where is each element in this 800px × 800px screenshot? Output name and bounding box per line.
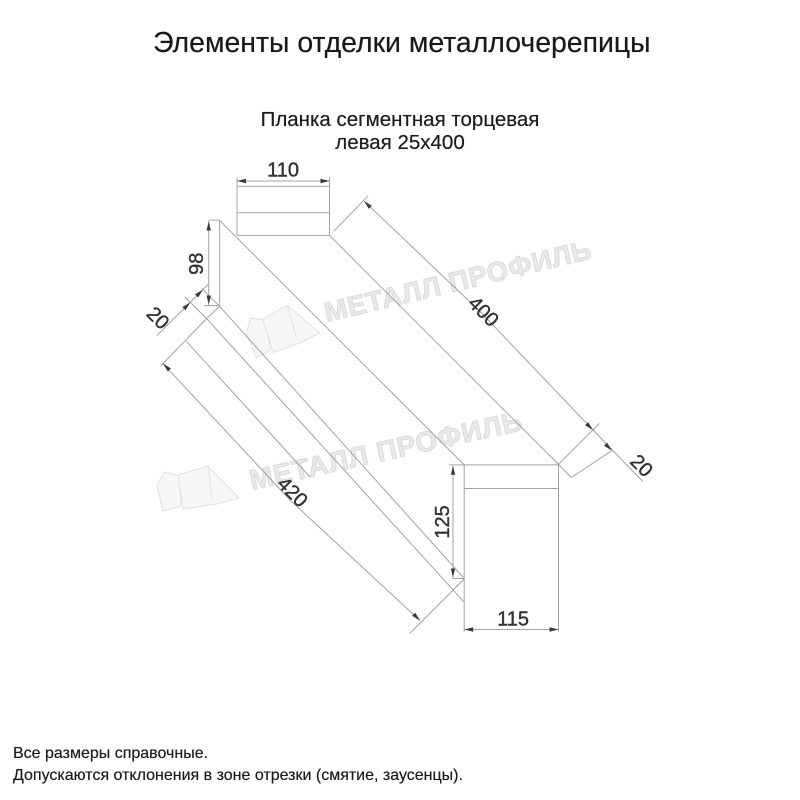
svg-text:115: 115 xyxy=(497,609,529,631)
svg-text:110: 110 xyxy=(267,159,299,181)
svg-text:20: 20 xyxy=(142,303,173,334)
svg-text:400: 400 xyxy=(464,292,503,331)
svg-text:125: 125 xyxy=(432,505,454,538)
svg-text:МЕТАЛЛ ПРОФИЛЬ: МЕТАЛЛ ПРОФИЛЬ xyxy=(321,234,595,328)
svg-text:98: 98 xyxy=(186,253,208,275)
svg-text:20: 20 xyxy=(625,450,656,481)
